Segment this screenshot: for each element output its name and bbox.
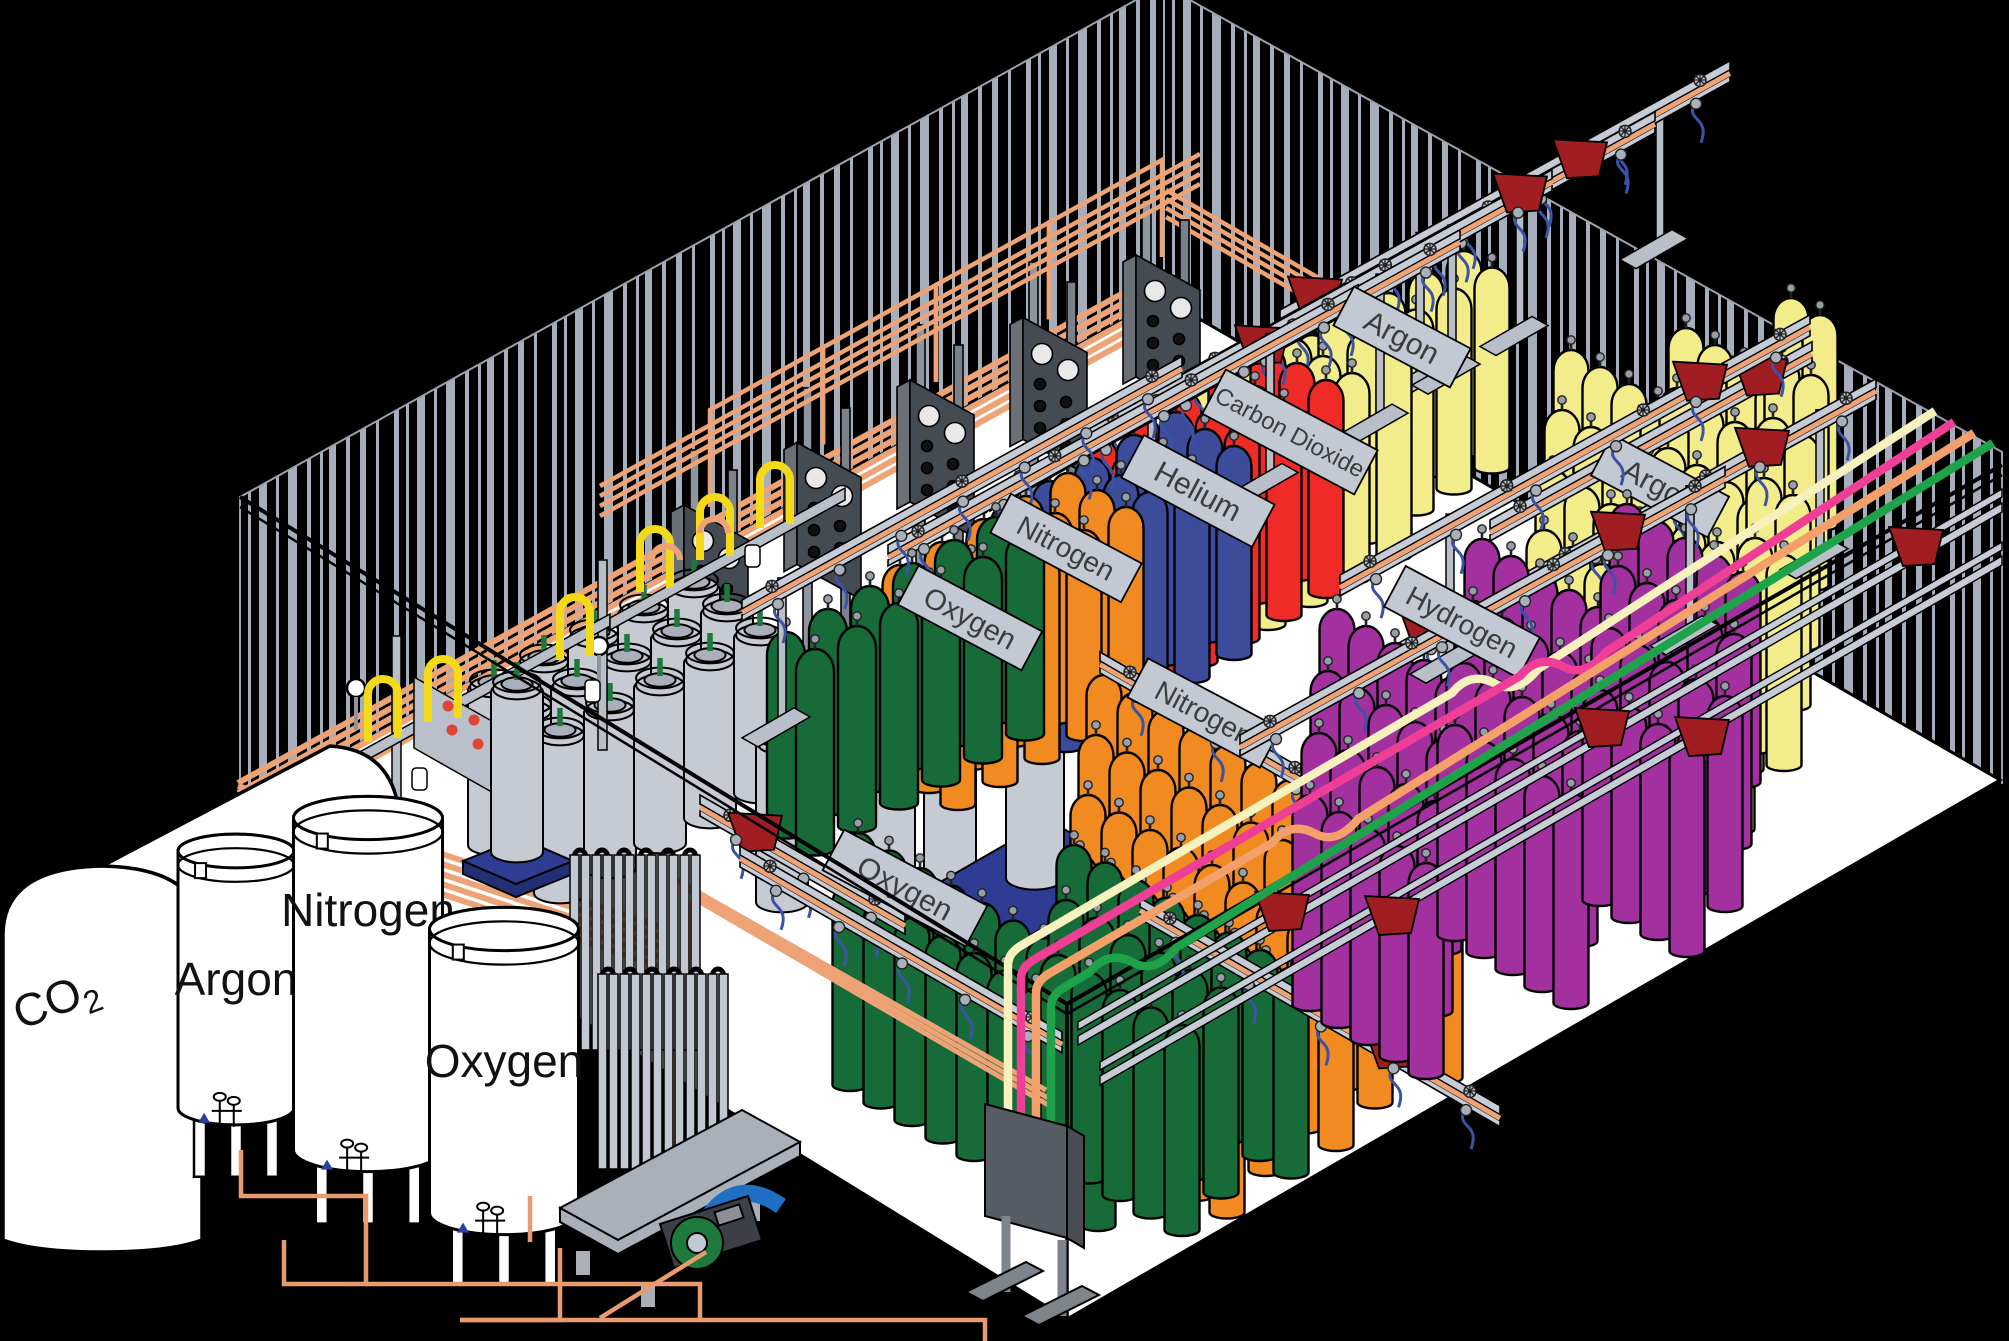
svg-text:Argon: Argon xyxy=(175,953,298,1005)
svg-text:Oxygen: Oxygen xyxy=(425,1035,584,1087)
